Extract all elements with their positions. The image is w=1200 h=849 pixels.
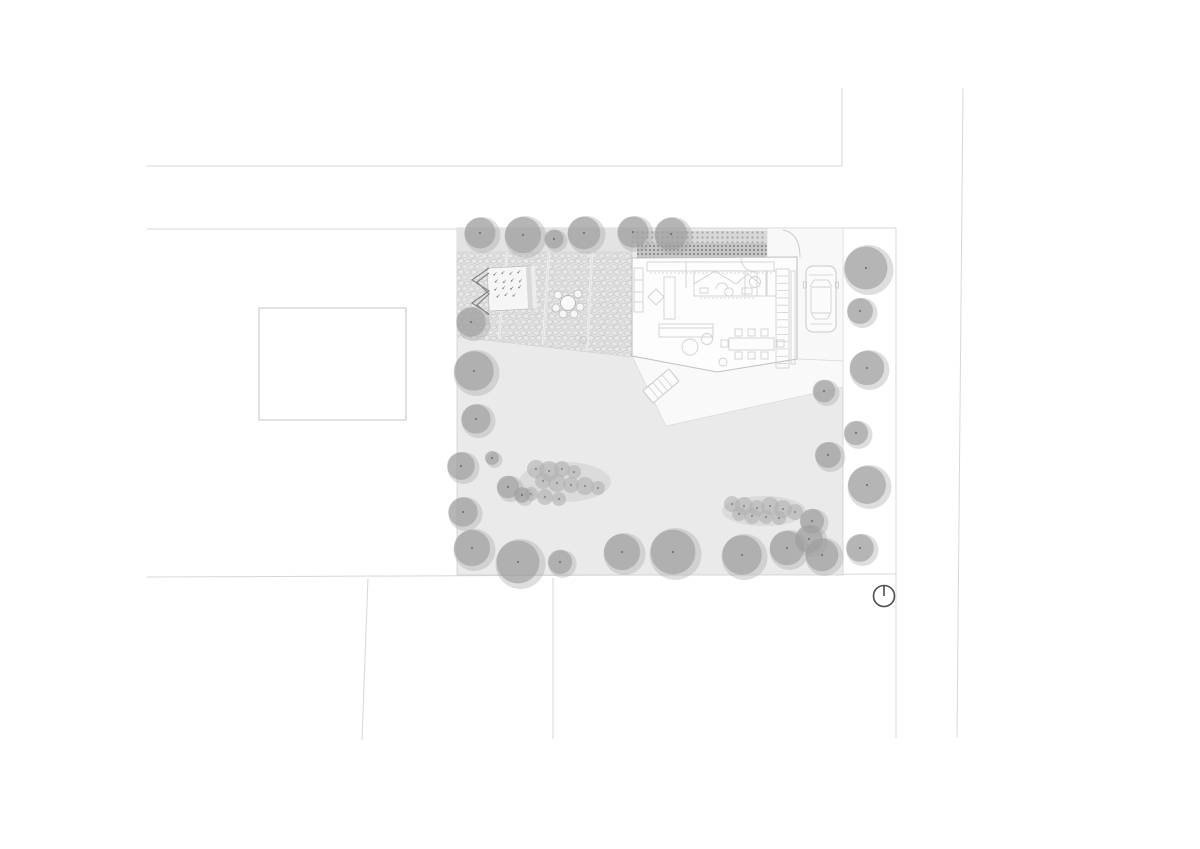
car-body	[806, 266, 836, 332]
house-outline	[632, 257, 797, 372]
tree	[449, 497, 483, 531]
tree-trunk-dot	[827, 454, 829, 456]
bush-dot	[597, 487, 599, 489]
tree-trunk-dot	[811, 520, 813, 522]
tree-trunk-dot	[521, 494, 523, 496]
tree	[462, 404, 496, 438]
tree-trunk-dot	[786, 547, 788, 549]
garden-chair	[552, 304, 560, 312]
garden-chair	[554, 291, 562, 299]
bush-dot	[794, 511, 796, 513]
pergola-strip-hatch	[637, 243, 767, 258]
tree-trunk-dot	[553, 238, 555, 240]
tree-trunk-dot	[866, 484, 868, 486]
tree-trunk-dot	[471, 547, 473, 549]
planted-bed	[487, 266, 537, 311]
tree	[848, 465, 892, 509]
bush-dot	[573, 471, 575, 473]
tree	[722, 534, 768, 580]
tree-trunk-dot	[517, 561, 519, 563]
bush-dot	[544, 496, 546, 498]
bush-dot	[548, 470, 550, 472]
tree	[454, 350, 500, 396]
tree	[447, 452, 479, 484]
bush-dot	[558, 498, 560, 500]
bush-dot	[778, 517, 780, 519]
tree	[604, 533, 646, 575]
tree-trunk-dot	[672, 551, 674, 553]
tree-trunk-dot	[583, 232, 585, 234]
bush-dot	[731, 503, 733, 505]
tree-trunk-dot	[859, 310, 861, 312]
bush-dot	[570, 484, 572, 486]
tree	[465, 217, 501, 253]
bush-dot	[584, 485, 586, 487]
bush-dot	[556, 482, 558, 484]
house	[632, 257, 797, 372]
tree-trunk-dot	[866, 367, 868, 369]
site-plan-canvas	[0, 0, 1200, 849]
tree	[655, 217, 693, 255]
tree	[806, 538, 844, 576]
tree	[844, 421, 872, 449]
tree-trunk-dot	[462, 511, 464, 513]
tree-trunk-dot	[741, 554, 743, 556]
bush-dot	[782, 508, 784, 510]
tree	[457, 307, 491, 341]
tree	[846, 534, 878, 566]
car	[804, 266, 839, 332]
tree	[844, 245, 894, 295]
garden-table	[561, 296, 576, 311]
garden-chair	[574, 290, 582, 298]
bush-dot	[769, 505, 771, 507]
tree-trunk-dot	[808, 538, 810, 540]
bush-dot	[738, 513, 740, 515]
tree-trunk-dot	[460, 465, 462, 467]
tree	[847, 298, 877, 328]
site-plan-drawing	[0, 0, 1200, 849]
tree	[505, 216, 547, 258]
tree-trunk-dot	[475, 418, 477, 420]
tree	[496, 539, 546, 589]
tree-trunk-dot	[491, 457, 493, 459]
tree	[650, 528, 702, 580]
tree-trunk-dot	[670, 233, 672, 235]
tree-trunk-dot	[855, 432, 857, 434]
bush-dot	[542, 480, 544, 482]
tree	[850, 350, 890, 390]
tree-trunk-dot	[823, 390, 825, 392]
tree-trunk-dot	[859, 547, 861, 549]
tree	[568, 216, 606, 254]
bush-dot	[756, 507, 758, 509]
bush-dot	[751, 515, 753, 517]
tree-trunk-dot	[632, 231, 634, 233]
tree-trunk-dot	[559, 561, 561, 563]
tree-trunk-dot	[522, 234, 524, 236]
garden-chair	[576, 303, 584, 311]
tree-trunk-dot	[821, 554, 823, 556]
tree-trunk-dot	[473, 370, 475, 372]
tree-trunk-dot	[479, 232, 481, 234]
bush-dot	[561, 468, 563, 470]
garden-chair	[570, 310, 578, 318]
tree	[618, 216, 654, 252]
street-line	[362, 578, 368, 740]
tree-trunk-dot	[621, 551, 623, 553]
tree-trunk-dot	[865, 267, 867, 269]
north-arrow-icon	[874, 586, 895, 607]
bush-dot	[743, 505, 745, 507]
tree-trunk-dot	[470, 321, 472, 323]
tree-trunk-dot	[507, 486, 509, 488]
neighbor-building	[259, 308, 406, 420]
bush-dot	[535, 468, 537, 470]
street-line	[957, 88, 963, 737]
tree	[454, 529, 496, 571]
garden-chair	[559, 310, 567, 318]
bush-dot	[765, 516, 767, 518]
